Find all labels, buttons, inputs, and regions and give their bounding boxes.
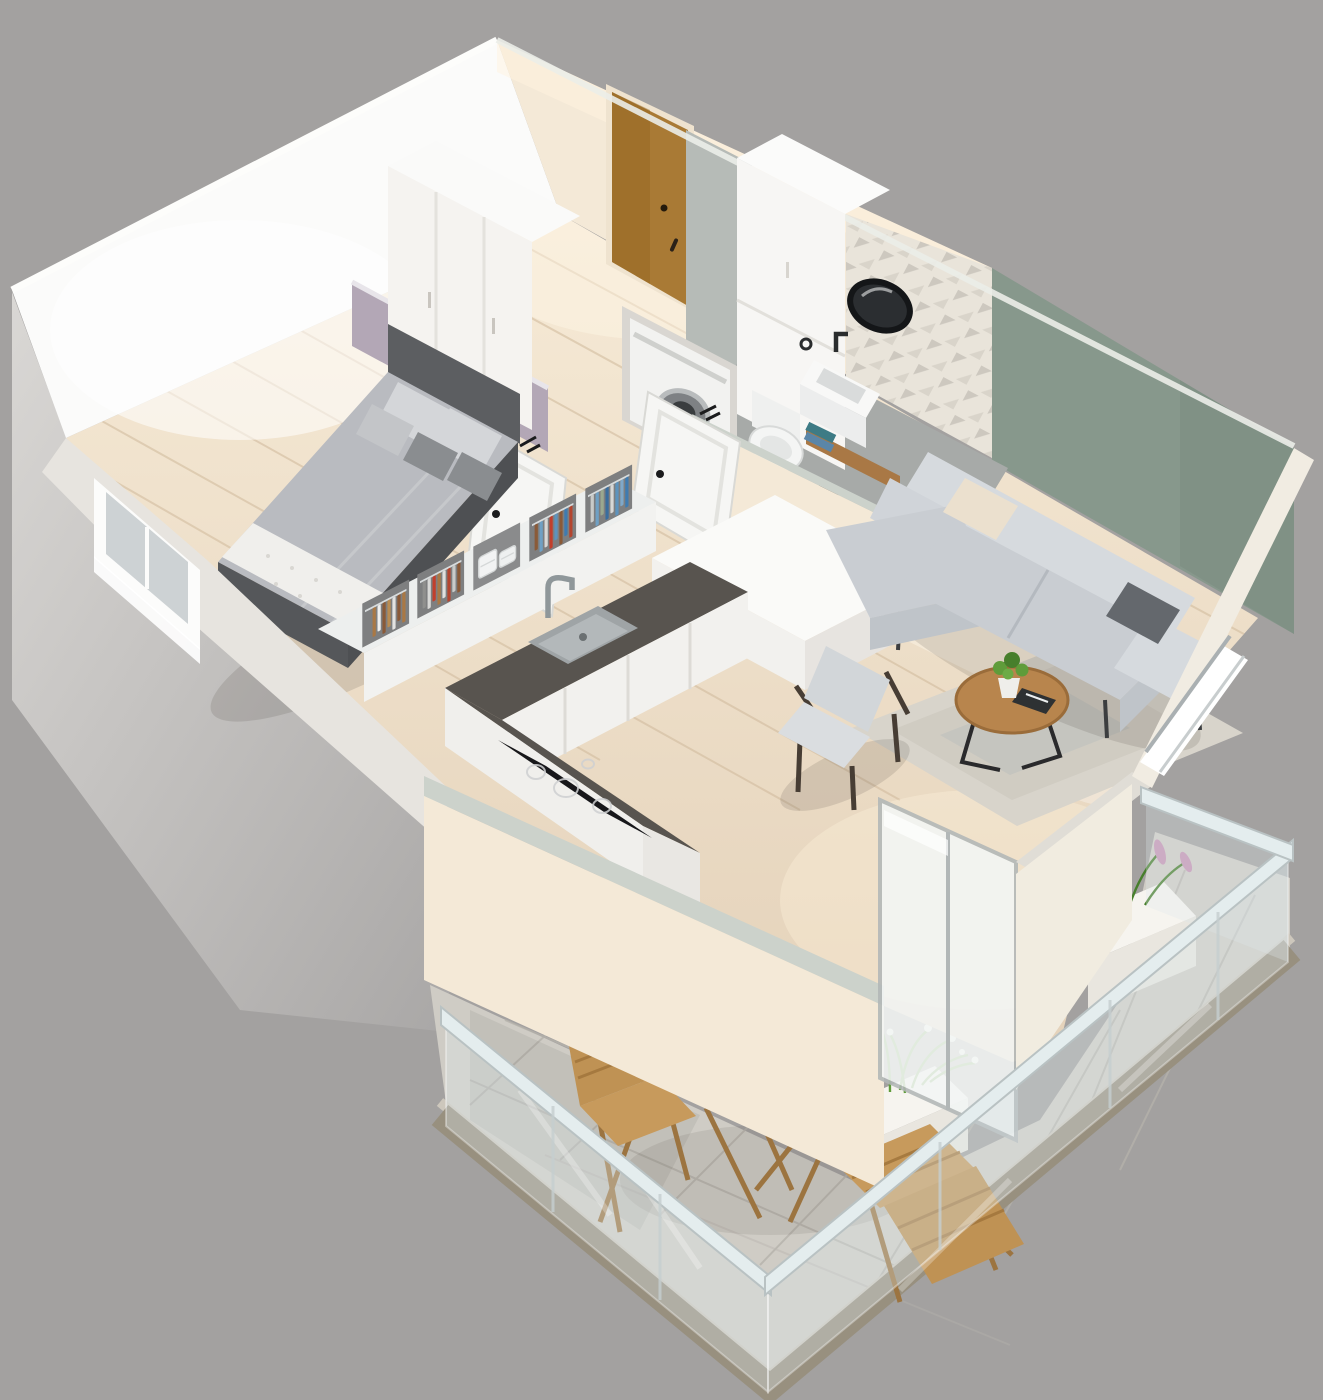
door-peephole [661,205,668,212]
door-handle [656,470,664,478]
floorplan-stage [0,0,1323,1400]
sink-drain [579,633,587,641]
cabinet-handle [786,262,789,278]
wardrobe-handle [428,292,431,308]
wardrobe-handle [492,318,495,334]
door-wood-shading [612,92,650,284]
door-handle [492,510,500,518]
apartment-isometric-render [0,0,1323,1400]
